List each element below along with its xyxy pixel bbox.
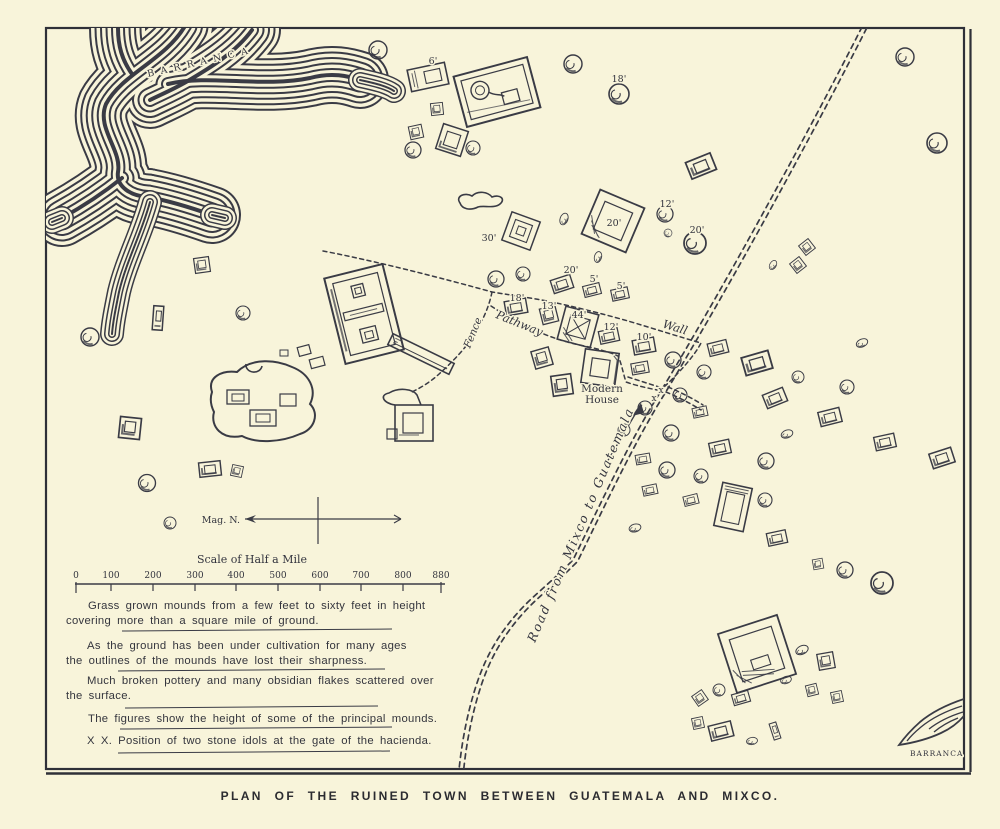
mound xyxy=(768,259,779,271)
note-rule xyxy=(122,629,392,631)
barranca-bottom-label: BARRANCA xyxy=(910,749,963,758)
mound-height-label: 44' xyxy=(572,310,587,321)
mound-height-label: 10' xyxy=(637,332,652,343)
enclosure-irregular xyxy=(211,345,325,442)
mound xyxy=(874,433,897,451)
mound xyxy=(550,274,574,293)
note-rule xyxy=(120,727,392,729)
scale-tick-label: 700 xyxy=(352,571,369,581)
note-line: X X. Position of two stone idols at the … xyxy=(87,735,432,747)
mound xyxy=(871,572,893,594)
mound xyxy=(635,453,651,465)
scale-title: Scale of Half a Mile xyxy=(197,553,307,566)
mound-complex-south xyxy=(383,389,433,441)
modern-house-structure xyxy=(581,349,619,387)
big-pyramid-mound xyxy=(718,615,796,693)
mound xyxy=(194,257,211,274)
scale-tick-label: 200 xyxy=(144,571,161,581)
road xyxy=(459,27,867,772)
mound xyxy=(551,374,574,397)
scale-bar xyxy=(75,582,445,593)
scale-tick-label: 0 xyxy=(73,571,79,581)
mound xyxy=(709,439,732,457)
mound xyxy=(766,530,787,547)
note-line: As the ground has been under cultivation… xyxy=(87,640,407,652)
mound xyxy=(830,690,843,703)
square-mound-30ft xyxy=(502,212,540,250)
mound xyxy=(929,447,955,469)
mound xyxy=(790,257,807,274)
scale-tick-label: 400 xyxy=(227,571,244,581)
mound xyxy=(405,142,421,158)
mound xyxy=(631,361,649,375)
mound xyxy=(466,141,480,155)
barranca-ravine xyxy=(52,26,394,334)
mound-height-labels: 6' 18' 12' 30' 20' 20' 20' 5' 5' 18' 13'… xyxy=(429,56,705,343)
mag-n-label: Mag. N. xyxy=(202,515,240,526)
mound xyxy=(236,306,250,320)
note-rule xyxy=(118,669,385,671)
compass xyxy=(245,497,401,544)
mound xyxy=(691,716,704,729)
mound xyxy=(805,683,818,696)
mound-height-label: 20' xyxy=(690,225,705,236)
mound-height-label: 12' xyxy=(660,199,675,210)
mound xyxy=(799,239,816,256)
scale-tick-label: 300 xyxy=(186,571,203,581)
mound-height-label: 12' xyxy=(604,322,619,333)
mound xyxy=(896,48,914,66)
mound xyxy=(230,464,243,477)
mound-height-label: 5' xyxy=(617,281,626,292)
scale-tick-label: 800 xyxy=(394,571,411,581)
mound xyxy=(152,306,164,331)
mound xyxy=(697,365,711,379)
mound xyxy=(837,562,853,578)
mound xyxy=(792,371,804,383)
mound xyxy=(741,350,773,375)
ridge-mound xyxy=(459,192,503,209)
idol-x-mark-1: x xyxy=(658,386,663,396)
mound xyxy=(369,41,387,59)
mound xyxy=(927,133,947,153)
mound xyxy=(762,387,787,408)
pathway-line-2 xyxy=(628,377,659,387)
mound xyxy=(817,652,836,671)
mound xyxy=(780,428,794,439)
mound-height-label: 6' xyxy=(429,56,438,67)
notes-block: Grass grown mounds from a few feet to si… xyxy=(66,600,437,753)
mound xyxy=(516,267,530,281)
mound xyxy=(758,453,774,469)
mound xyxy=(642,484,658,496)
boundary-lines xyxy=(323,251,703,410)
mound xyxy=(81,328,99,346)
mound-height-label: 20' xyxy=(564,265,579,276)
mound xyxy=(164,517,176,529)
gate-lane xyxy=(666,387,703,410)
fence-label: Fence xyxy=(461,316,484,351)
modern-house-label-2: House xyxy=(585,394,619,406)
page-title: PLAN OF THE RUINED TOWN BETWEEN GUATEMAL… xyxy=(221,789,780,803)
mound xyxy=(692,690,709,707)
mound xyxy=(663,425,679,441)
map-canvas: BARRANCA BARRANCA Fence Pathway Wall Roa… xyxy=(0,0,1000,829)
mound xyxy=(818,407,842,426)
mound-height-label: 30' xyxy=(482,233,497,244)
fence-line xyxy=(412,292,492,392)
scale-tick-label: 600 xyxy=(311,571,328,581)
mound xyxy=(758,493,772,507)
note-line: The figures show the height of some of t… xyxy=(88,713,437,725)
mound xyxy=(746,737,758,746)
mound xyxy=(794,643,809,656)
scale-tick-labels: 0 100 200 300 400 500 600 700 800 880 xyxy=(73,571,450,581)
mound xyxy=(659,462,675,478)
mound xyxy=(593,251,603,263)
mound xyxy=(118,416,141,439)
mound xyxy=(531,347,553,369)
mound xyxy=(564,55,582,73)
mound-height-label: 5' xyxy=(590,274,599,285)
mound xyxy=(685,153,716,179)
mound xyxy=(840,380,854,394)
note-line: the surface. xyxy=(66,690,131,702)
note-line: covering more than a square mile of grou… xyxy=(66,615,319,627)
map-page: BARRANCA BARRANCA Fence Pathway Wall Roa… xyxy=(0,0,1000,829)
mound-height-label: 18' xyxy=(612,74,627,85)
mound xyxy=(812,558,824,570)
mound xyxy=(707,339,729,356)
note-line: Much broken pottery and many obsidian fl… xyxy=(87,675,434,687)
note-line: Grass grown mounds from a few feet to si… xyxy=(88,600,426,612)
scale-tick-label: 100 xyxy=(102,571,119,581)
mound xyxy=(628,523,642,534)
mound xyxy=(731,690,750,705)
mound xyxy=(609,84,629,104)
mound-height-label: 20' xyxy=(607,218,622,229)
mound-height-label: 13' xyxy=(542,301,557,312)
note-rule xyxy=(125,706,378,708)
mound xyxy=(488,271,504,287)
mound xyxy=(692,406,708,418)
enclosure-large xyxy=(324,264,404,364)
mound xyxy=(708,721,734,741)
square-mound-a xyxy=(436,124,469,157)
pathway-label: Pathway xyxy=(493,307,545,339)
mound xyxy=(430,102,443,115)
road-label: Road from Mixco to Guatemala xyxy=(524,405,637,645)
mound-height-label: 18' xyxy=(510,293,525,304)
mound-complex-north xyxy=(454,57,541,127)
mound xyxy=(558,212,569,226)
mound xyxy=(139,475,156,492)
mound xyxy=(408,124,423,139)
mound xyxy=(855,337,869,349)
scale-tick-label: 500 xyxy=(269,571,286,581)
note-line: the outlines of the mounds have lost the… xyxy=(66,655,367,667)
mound xyxy=(683,494,699,507)
scale-tick-label: 880 xyxy=(432,571,449,581)
map-text: BARRANCA BARRANCA Fence Pathway Wall Roa… xyxy=(66,45,963,803)
idol-x-mark-2: x xyxy=(651,394,656,404)
mound xyxy=(664,229,672,237)
mound xyxy=(713,684,725,696)
note-rule xyxy=(118,751,390,753)
mound xyxy=(769,722,781,740)
mound xyxy=(694,469,708,483)
mound xyxy=(199,461,222,478)
wall-label: Wall xyxy=(661,317,689,338)
enclosure-tall xyxy=(714,482,752,531)
barranca-corner-sketch xyxy=(899,698,967,745)
